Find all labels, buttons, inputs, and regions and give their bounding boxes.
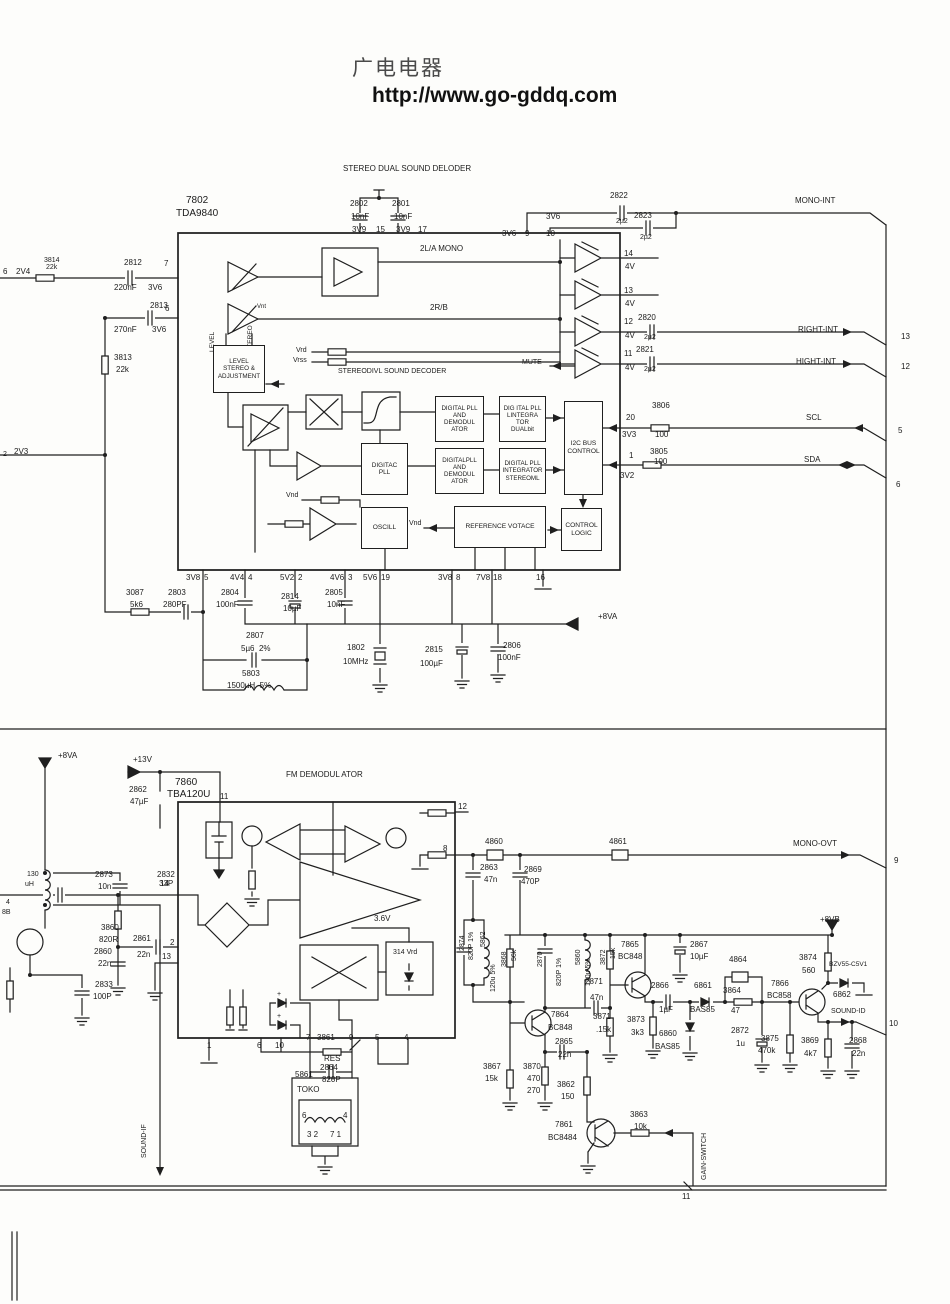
schematic-label: 5860 xyxy=(575,949,582,965)
schematic-label: 3V8 xyxy=(438,574,452,582)
schematic-label: 2820 xyxy=(638,314,656,322)
schematic-label: 6 xyxy=(257,1042,261,1050)
schematic-label: 2866 xyxy=(651,982,669,990)
schematic-label: 10MHz xyxy=(343,658,368,666)
schematic-label: 13 xyxy=(901,333,910,341)
function-block: DIGITACPLL xyxy=(361,443,408,495)
schematic-label: 12 xyxy=(901,363,910,371)
function-block: DIGITALPLLANDDEMODULATOR xyxy=(435,448,484,494)
schematic-label: 7860 xyxy=(175,778,197,789)
schematic-label: STEREODIVL SOUND DECODER xyxy=(338,368,446,375)
schematic-label: 7V8 xyxy=(476,574,490,582)
schematic-label: 1802 xyxy=(347,644,365,652)
schematic-label: 2803 xyxy=(168,589,186,597)
schematic-label: 7802 xyxy=(186,196,208,207)
schematic-label: 270 xyxy=(527,1087,540,1095)
schematic-label: uH xyxy=(25,881,34,888)
schematic-label: 10nF xyxy=(351,213,369,221)
schematic-label: 2805 xyxy=(325,589,343,597)
schematic-label: .15k xyxy=(596,1026,611,1034)
schematic-label: 8 xyxy=(456,574,460,582)
schematic-label: 2804 xyxy=(221,589,239,597)
schematic-label: TDA9840 xyxy=(176,209,218,220)
schematic-label: 4 xyxy=(404,1034,408,1042)
schematic-label: 3V8 xyxy=(186,574,200,582)
schematic-label: 820R xyxy=(99,936,118,944)
schematic-label: 7 1 xyxy=(330,1131,341,1139)
schematic-label: 22k xyxy=(116,366,129,374)
function-block: DIGITAL PLLINTEGRATORSTEREOML xyxy=(499,448,546,494)
schematic-label: 14 xyxy=(624,250,633,258)
schematic-label: 2814 xyxy=(281,593,299,601)
schematic-label: 1u xyxy=(736,1040,745,1048)
schematic-label: 470 xyxy=(527,1075,540,1083)
schematic-label: 9 xyxy=(349,1034,353,1042)
schematic-label: 2863 xyxy=(480,864,498,872)
schematic-label: 22n xyxy=(98,960,111,968)
schematic-label: 8B xyxy=(2,909,11,916)
schematic-label: 3V2 xyxy=(620,472,634,480)
schematic-label: 6 xyxy=(3,268,7,276)
schematic-label: 2V4 xyxy=(16,268,30,276)
schematic-label: BC848 xyxy=(618,953,642,961)
schematic-label: 3V3 xyxy=(622,431,636,439)
schematic-label: 7861 xyxy=(555,1121,573,1129)
schematic-label: 1µF xyxy=(659,1006,673,1014)
schematic-label: 2864 xyxy=(320,1064,338,1072)
schematic-label: 3805 xyxy=(650,448,668,456)
schematic-label: 100 xyxy=(654,458,667,466)
schematic-label: 4V xyxy=(625,364,635,372)
schematic-label: 2869 xyxy=(524,866,542,874)
schematic-label: Vrd xyxy=(296,347,307,354)
schematic-label: 100nF xyxy=(216,601,239,609)
schematic-label: 9 xyxy=(525,230,529,238)
schematic-label: 2µ2 xyxy=(640,234,652,241)
schematic-label: 4k7 xyxy=(804,1050,817,1058)
schematic-label: SOUND-ID xyxy=(831,1008,866,1015)
schematic-label: 20 xyxy=(626,414,635,422)
schematic-label: 10nF xyxy=(394,213,412,221)
schematic-label: 1 xyxy=(629,452,633,460)
schematic-label: 2 xyxy=(3,451,7,458)
schematic-label: 5k6 xyxy=(130,601,143,609)
schematic-label: 7864 xyxy=(551,1011,569,1019)
schematic-label: 2867 xyxy=(690,941,708,949)
schematic-label: 270nF xyxy=(114,326,137,334)
schematic-label: MUTE xyxy=(522,359,542,366)
function-block: DIGITAL PLLANDDEMODULATOR xyxy=(435,396,484,442)
schematic-label: 5803 xyxy=(242,670,260,678)
schematic-label: 4V6 xyxy=(330,574,344,582)
schematic-label: 3V6 xyxy=(152,326,166,334)
schematic-label: 7 xyxy=(164,260,168,268)
schematic-label: 3k3 xyxy=(631,1029,644,1037)
schematic-label: 100P xyxy=(93,993,112,1001)
schematic-label: 2822 xyxy=(610,192,628,200)
schematic-label: 10n xyxy=(98,883,111,891)
schematic-label: 2860 xyxy=(94,948,112,956)
schematic-label: 820P 1% xyxy=(556,958,563,986)
schematic-label: 2801 xyxy=(392,200,410,208)
schematic-label: 3861 xyxy=(317,1034,335,1042)
schematic-label: 9 xyxy=(894,857,898,865)
schematic-label: BAS85 xyxy=(690,1006,715,1014)
schematic-label: 6 xyxy=(896,481,900,489)
schematic-label: 220nF xyxy=(114,284,137,292)
schematic-label: 6860 xyxy=(659,1030,677,1038)
schematic-label: 100nF xyxy=(498,654,521,662)
schematic-label: 5862 xyxy=(480,931,487,947)
schematic-label: 22n xyxy=(137,951,150,959)
schematic-label: 7865 xyxy=(621,941,639,949)
schematic-label: 10 xyxy=(546,230,555,238)
schematic-label: 3863 xyxy=(630,1111,648,1119)
schematic-label: 5V6 xyxy=(363,574,377,582)
schematic-label: BAS85 xyxy=(655,1043,680,1051)
schematic-label: 47 xyxy=(731,1007,740,1015)
schematic-label: 12 xyxy=(458,803,467,811)
schematic-label: 3873 xyxy=(627,1016,645,1024)
schematic-label: 820P 1% xyxy=(468,932,475,960)
schematic-label: 4V xyxy=(625,332,635,340)
schematic-label: 3867 xyxy=(483,1063,501,1071)
schematic-label: 3V6 xyxy=(148,284,162,292)
schematic-label: 3870 xyxy=(523,1063,541,1071)
schematic-label: GAIN-SWITCH xyxy=(701,1133,708,1180)
schematic-label: 2874 xyxy=(459,935,466,951)
schematic-label: 18 xyxy=(493,574,502,582)
schematic-label: BC858 xyxy=(767,992,791,1000)
schematic-label: 820P xyxy=(322,1076,341,1084)
schematic-label: 33P xyxy=(159,880,173,888)
schematic-label: 560 xyxy=(802,967,815,975)
schematic-label: +13V xyxy=(133,756,152,764)
schematic-label: 15 xyxy=(376,226,385,234)
schematic-label: 2812 xyxy=(124,259,142,267)
schematic-label: 47µF xyxy=(130,798,148,806)
schematic-label: 3087 xyxy=(126,589,144,597)
schematic-label: 3806 xyxy=(652,402,670,410)
schematic-label: 4864 xyxy=(729,956,747,964)
schematic-label: 5µ6 2% xyxy=(241,645,271,653)
schematic-label: BZV55-C5V1 xyxy=(829,962,867,969)
schematic-label: 2L/A MONO xyxy=(420,245,463,253)
schematic-label: 10µF xyxy=(690,953,708,961)
schematic-label: + xyxy=(277,991,281,998)
schematic-label: 3872 xyxy=(600,949,607,965)
schematic-label: 12 xyxy=(624,318,633,326)
schematic-label: 16 xyxy=(536,574,545,582)
schematic-label: 4V xyxy=(625,263,635,271)
schematic-label: 4V xyxy=(625,300,635,308)
schematic-label: BC848 xyxy=(548,1024,572,1032)
schematic-label: 120u 5% xyxy=(585,958,592,986)
schematic-label: 2R/B xyxy=(430,304,448,312)
schematic-label: 4V4 xyxy=(230,574,244,582)
schematic-label: 3869 xyxy=(801,1037,819,1045)
schematic-page: 广电电器 http://www.go-gddq.com xyxy=(0,0,950,1304)
schematic-label: 2823 xyxy=(634,212,652,220)
schematic-label: 22n xyxy=(852,1050,865,1058)
schematic-label: + xyxy=(277,1013,281,1020)
schematic-label: 13 xyxy=(162,953,171,961)
schematic-label: HIGHT-INT xyxy=(796,358,836,366)
function-block: OSCILL xyxy=(361,507,408,549)
schematic-label: FM DEMODUL ATOR xyxy=(286,771,363,779)
schematic-label: Vnd xyxy=(286,492,298,499)
schematic-label: 3V6 xyxy=(502,230,516,238)
schematic-label: +8VB xyxy=(820,916,840,924)
schematic-label: 2833 xyxy=(95,981,113,989)
function-block: I2C BUSCONTROL xyxy=(564,401,603,495)
schematic-label: 15k xyxy=(485,1075,498,1083)
schematic-label: 470k xyxy=(758,1047,775,1055)
schematic-label: 2µ2 xyxy=(644,366,656,373)
schematic-label: 3V9 xyxy=(396,226,410,234)
schematic-label: 22k xyxy=(46,264,57,271)
schematic-label: 10nF xyxy=(327,601,345,609)
schematic-label: 2815 xyxy=(425,646,443,654)
schematic-label: 150 xyxy=(561,1093,574,1101)
schematic-label: 3.6V xyxy=(374,915,390,923)
schematic-label: 6 xyxy=(165,305,169,313)
schematic-label: MONO-OVT xyxy=(793,840,837,848)
function-block: LEVELSTEREO &ADJUSTMENT xyxy=(213,345,265,393)
schematic-label: 2V3 xyxy=(14,448,28,456)
schematic-label: 3871 xyxy=(593,1013,611,1021)
schematic-label: 3862 xyxy=(557,1081,575,1089)
schematic-label: 2802 xyxy=(350,200,368,208)
schematic-label: 314 Vrd xyxy=(393,949,417,956)
schematic-label: 10 xyxy=(889,1020,898,1028)
schematic-label: 2870 xyxy=(537,951,544,967)
schematic-label: 3V9 xyxy=(352,226,366,234)
schematic-label: 10k xyxy=(634,1123,647,1131)
schematic-label: 2µ2 xyxy=(616,218,628,225)
schematic-label: 2862 xyxy=(129,786,147,794)
schematic-label: 5 xyxy=(204,574,208,582)
schematic-label: 2873 xyxy=(95,871,113,879)
schematic-label: 280PF xyxy=(163,601,187,609)
schematic-label: 120u 5% xyxy=(490,964,497,992)
schematic-label: 8 xyxy=(443,845,447,853)
schematic-label: SDA xyxy=(804,456,820,464)
schematic-label: 7866 xyxy=(771,980,789,988)
schematic-label: 10 xyxy=(275,1042,284,1050)
schematic-label: 4 xyxy=(343,1112,347,1120)
schematic-label: 22n xyxy=(558,1051,571,1059)
schematic-label: 1500µH 5% xyxy=(227,682,271,690)
schematic-label: 5V2 xyxy=(280,574,294,582)
schematic-label: 470P xyxy=(521,878,540,886)
schematic-label: 6862 xyxy=(833,991,851,999)
function-block: CONTROLLOGIC xyxy=(561,508,602,551)
schematic-label: SOUND-IF xyxy=(141,1124,148,1158)
schematic-label: 15k xyxy=(610,948,617,959)
schematic-label: 2 xyxy=(298,574,302,582)
schematic-label: 56k xyxy=(511,950,518,961)
schematic-label: 47n xyxy=(590,994,603,1002)
schematic-label: 3864 xyxy=(723,987,741,995)
schematic-label: 3875 xyxy=(761,1035,779,1043)
schematic-label: 3860 xyxy=(101,924,119,932)
schematic-label: 13 xyxy=(624,287,633,295)
schematic-label: 7 xyxy=(306,1034,310,1042)
schematic-label: 3813 xyxy=(114,354,132,362)
schematic-label: 6 xyxy=(302,1112,306,1120)
schematic-label: 3874 xyxy=(799,954,817,962)
schematic-label: 6861 xyxy=(694,982,712,990)
schematic-label: 19 xyxy=(381,574,390,582)
schematic-label: +8VA xyxy=(58,752,77,760)
schematic-label: 130 xyxy=(27,871,39,878)
schematic-label: 2821 xyxy=(636,346,654,354)
schematic-label: SCL xyxy=(806,414,822,422)
schematic-label: 4860 xyxy=(485,838,503,846)
schematic-label: 4 xyxy=(248,574,252,582)
schematic-label: 3V6 xyxy=(546,213,560,221)
schematic-label: 5 xyxy=(375,1034,379,1042)
schematic-label: 10µF xyxy=(283,605,301,613)
schematic-label: 2872 xyxy=(731,1027,749,1035)
schematic-label: 2807 xyxy=(246,632,264,640)
schematic-label: 100 xyxy=(655,431,668,439)
schematic-label: 100µF xyxy=(420,660,443,668)
function-block: REFERENCE VOTACE xyxy=(454,506,546,548)
schematic-label: MONO-INT xyxy=(795,197,835,205)
schematic-label: 2 xyxy=(170,939,174,947)
schematic-label: BC8484 xyxy=(548,1134,577,1142)
schematic-label: 3868 xyxy=(501,951,508,967)
schematic-label: 1 xyxy=(207,1042,211,1050)
schematic-label: 3 xyxy=(348,574,352,582)
schematic-label: 2806 xyxy=(503,642,521,650)
schematic-label: Vrss xyxy=(293,357,307,364)
schematic-label: Vnd xyxy=(409,520,421,527)
function-block: DIG ITAL PLLLINTEGRATORDUALbit xyxy=(499,396,546,442)
schematic-label: 5 xyxy=(898,427,902,435)
schematic-label: 11 xyxy=(682,1193,690,1201)
schematic-label: TOKO xyxy=(297,1086,320,1094)
schematic-label: Vnt xyxy=(257,304,266,310)
schematic-label: 2µ2 xyxy=(644,334,656,341)
schematic-label: 3 2 xyxy=(307,1131,318,1139)
schematic-label: 5861 xyxy=(295,1071,313,1079)
schematic-label: 2865 xyxy=(555,1038,573,1046)
schematic-label: 47n xyxy=(484,876,497,884)
schematic-label: RIGHT-INT xyxy=(798,326,838,334)
schematic-label: 2868 xyxy=(849,1037,867,1045)
schematic-label: 4 xyxy=(6,899,10,906)
schematic-label: 17 xyxy=(418,226,427,234)
schematic-label: 11 xyxy=(220,793,228,801)
schematic-label: 11 xyxy=(624,350,632,358)
schematic-label: 4861 xyxy=(609,838,627,846)
schematic-label: 2861 xyxy=(133,935,151,943)
schematic-label: +8VA xyxy=(598,613,617,621)
schematic-label: TBA120U xyxy=(167,790,210,801)
schematic-label: STEREO DUAL SOUND DELODER xyxy=(343,165,471,173)
